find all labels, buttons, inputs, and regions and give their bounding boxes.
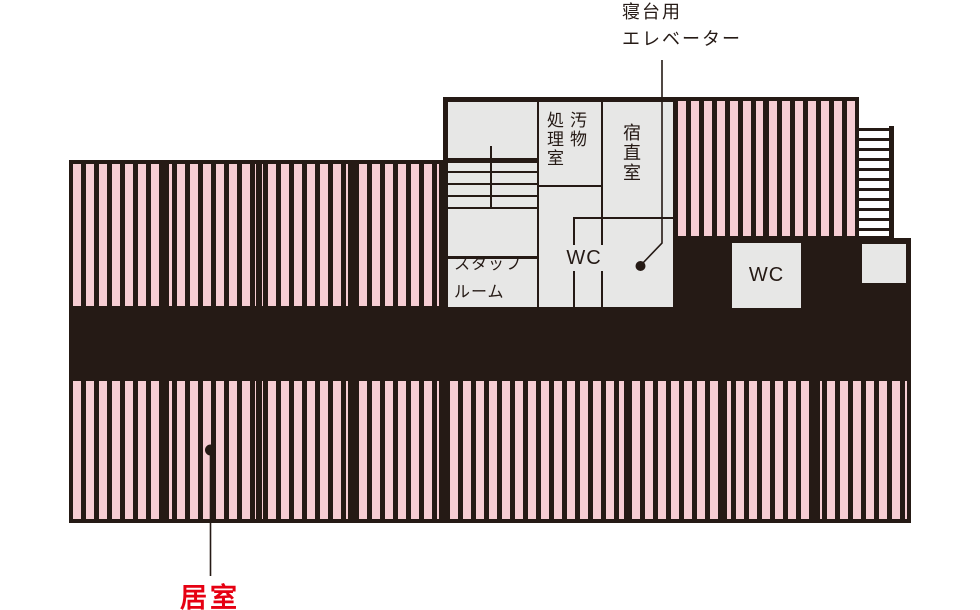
stair-top-wall [448,158,539,163]
wall-vertical [601,102,603,307]
room-divider [348,164,354,306]
stair-tread [448,183,539,185]
room-divider [256,164,262,306]
stair-tread [448,171,539,173]
staff-room-label-line2: ルーム [454,279,522,307]
night-duty-room-label: 宿直室 [618,123,644,183]
room-divider [256,381,262,519]
wc-inner-label: WC [561,245,607,271]
room-divider [163,381,169,519]
ladder-hatch [859,126,894,240]
room-divider [721,381,727,519]
wc-outer-label: WC [749,264,784,287]
room-divider [814,381,820,519]
bed-elevator-label-line1: 寝台用 [622,0,742,26]
living-room-label: 居室 [180,576,240,610]
staff-room-label-line1: スタッフ [454,251,522,279]
room-divider [348,381,354,519]
stair-tread [448,195,539,197]
bed-elevator-label: 寝台用 エレベーター [622,0,742,53]
waste-processing-room-label: 汚物 処理室 [542,111,588,168]
bed-elevator-label-line2: エレベーター [622,26,742,53]
corridor-fill-lower [69,310,911,382]
wall-vertical [537,102,539,307]
right-room-band [678,97,859,240]
waste-processing-room-label-line2: 処理室 [542,111,565,168]
room-divider [439,381,445,519]
room-divider [763,101,769,236]
room-divider [163,164,169,306]
room-divider [624,381,630,519]
wc-outer-box: WC [728,239,805,312]
wall-horizontal [537,185,603,187]
wall-horizontal [573,217,673,219]
upper-room-band [69,160,443,310]
small-room-box [858,240,910,287]
staff-room-label: スタッフ ルーム [454,251,522,307]
stair-center-line [490,146,492,209]
service-block: 汚物 処理室 宿直室 スタッフ ルーム WC [443,97,678,312]
waste-processing-room-label-line1: 汚物 [565,111,588,168]
floor-plan: 汚物 処理室 宿直室 スタッフ ルーム WC WC 寝台用 エレベーター 居室 [0,0,980,610]
stair-tread [448,207,539,209]
bottom-room-band [69,377,911,523]
